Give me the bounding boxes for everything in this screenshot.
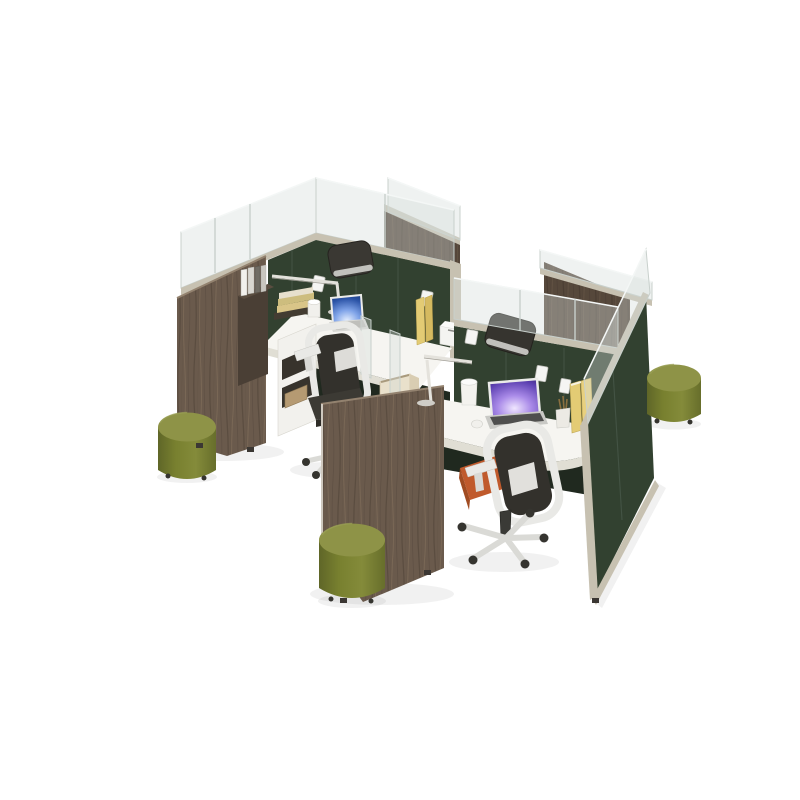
ottoman-foot <box>655 419 660 424</box>
mug-rim <box>308 299 320 304</box>
power-outlet <box>559 378 571 394</box>
panel-foot <box>424 570 431 575</box>
ottoman-center <box>319 524 385 604</box>
binders <box>241 265 266 296</box>
yellow-book <box>425 295 433 342</box>
ottoman-foot <box>202 476 207 481</box>
lamp-base <box>417 400 435 406</box>
ottoman-foot <box>166 474 171 479</box>
laptop-b <box>485 379 548 429</box>
ottoman-foot <box>688 420 693 425</box>
binder <box>255 266 260 293</box>
panel-foot <box>196 443 203 448</box>
shadow-chair-b <box>449 552 559 572</box>
binder <box>261 265 266 292</box>
ottoman-left <box>158 413 216 481</box>
computer-mouse <box>472 420 483 428</box>
cup <box>556 408 570 428</box>
office-cubicle-scene <box>0 0 800 800</box>
binder <box>248 267 254 294</box>
binder <box>241 269 247 296</box>
power-outlet <box>465 329 478 345</box>
mug <box>308 299 320 317</box>
panel-foot <box>247 447 254 452</box>
ottoman-foot <box>329 597 334 602</box>
panel-foot <box>340 598 347 603</box>
ottoman-right <box>647 365 701 425</box>
yellow-book <box>416 297 425 345</box>
coffee-cup <box>461 379 477 405</box>
chair-c-rear <box>327 239 375 279</box>
panel-foot <box>592 598 599 603</box>
product-render-canvas <box>0 0 800 800</box>
storage-cabinet <box>238 284 268 386</box>
ottoman-foot <box>369 599 374 604</box>
cup-lid <box>461 379 477 385</box>
